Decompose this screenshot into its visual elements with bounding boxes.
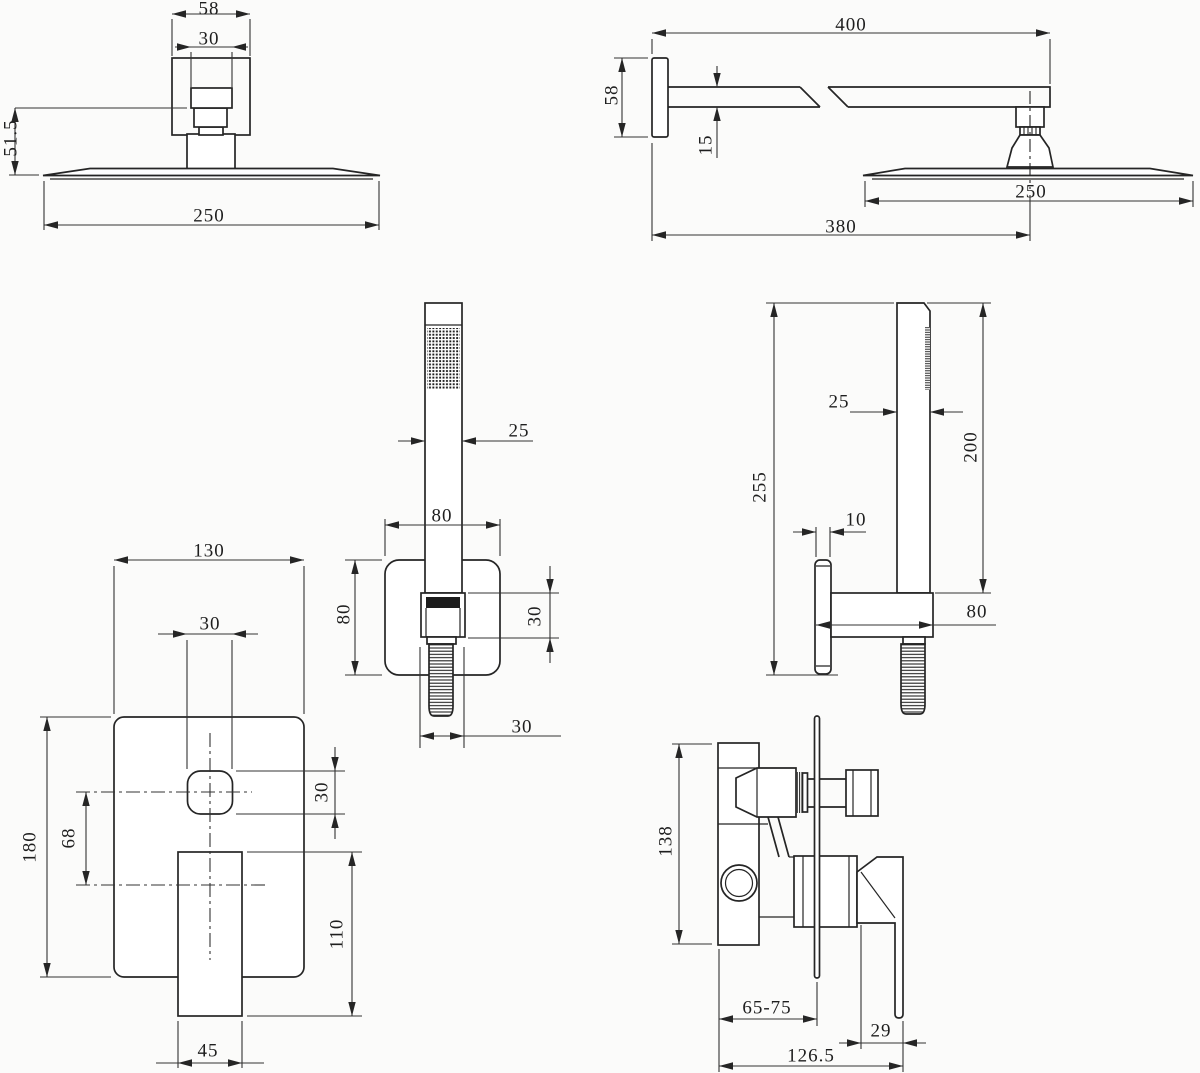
- diverter-nut: [846, 770, 878, 816]
- wall-flange: [652, 58, 668, 137]
- dim-label-plate-height: 180: [21, 831, 40, 863]
- dim-label-arm-length: 400: [835, 16, 867, 35]
- spray-face-edge: [925, 327, 930, 390]
- hose-neck: [427, 637, 456, 644]
- dim-label-arm-thickness: 15: [697, 135, 716, 156]
- dim-label-head-diameter-side: 250: [1015, 183, 1047, 202]
- dim-label-bracket-height-hs: 80: [335, 604, 354, 625]
- dim-label-handle-width: 45: [198, 1042, 219, 1061]
- internal-linkage: [768, 817, 789, 857]
- spray-face-pattern: [427, 328, 460, 389]
- dim-label-bracket-width: 58: [199, 0, 220, 19]
- connector-step1: [191, 88, 232, 108]
- connector-step2: [194, 108, 227, 127]
- dim-label-total-depth: 126.5: [787, 1047, 835, 1066]
- dim-label-holder-height: 30: [526, 606, 545, 627]
- shower-head-disc: [43, 169, 380, 176]
- dim-label-drop-height: 51.5: [2, 119, 21, 156]
- dim-label-wand-length: 200: [962, 431, 981, 463]
- connector-cylinder: [187, 134, 235, 169]
- view-hand-shower-front: [345, 303, 561, 748]
- dim-label-flange-height: 58: [603, 85, 622, 106]
- dim-label-handle-offset: 29: [871, 1022, 892, 1041]
- diverter-knob-side: [736, 768, 796, 817]
- view-shower-head-front: [9, 10, 380, 230]
- shower-arm-segment2: [828, 87, 1050, 107]
- dim-label-total-height: 255: [751, 471, 770, 503]
- dim-label-knob-width: 30: [200, 615, 221, 634]
- dim-label-wand-width: 25: [509, 422, 530, 441]
- mixer-lever-handle: [857, 857, 903, 1018]
- dim-label-body-height: 138: [657, 825, 676, 857]
- dim-label-plate-width: 130: [193, 542, 225, 561]
- holder-grip-band: [426, 597, 460, 608]
- diverter-stem: [807, 779, 846, 807]
- hose-neck-side: [903, 637, 925, 644]
- shower-arm-segment1: [668, 87, 820, 107]
- wall-trim-plate: [815, 716, 820, 978]
- wall-plate-side: [815, 560, 831, 674]
- view-mixer-side: [672, 716, 926, 1072]
- dim-label-wall-depth-range: 65-75: [742, 999, 791, 1018]
- dim-label-thread-width: 30: [512, 718, 533, 737]
- dim-label-knob-height: 30: [313, 782, 332, 803]
- shower-head-disc-side: [863, 169, 1193, 176]
- dim-label-holder-depth: 80: [967, 603, 988, 622]
- hose-thread-side: [901, 644, 925, 714]
- dim-label-head-diameter: 250: [193, 207, 225, 226]
- connector-neck: [199, 127, 223, 135]
- technical-drawing-page: 58 30 51.5 250 400 58 15 250 380 25 80 8…: [0, 0, 1200, 1073]
- hose-thread: [429, 644, 453, 716]
- drawing-canvas: [0, 0, 1200, 1073]
- dim-label-handle-length: 110: [328, 919, 347, 950]
- dim-label-inner-width: 30: [199, 30, 220, 49]
- dim-label-center-spacing: 68: [60, 828, 79, 849]
- dim-label-wall-to-center: 380: [825, 218, 857, 237]
- dim-label-bracket-width-hs: 80: [432, 507, 453, 526]
- holder-side: [831, 593, 933, 637]
- dim-label-wand-depth: 25: [829, 393, 850, 412]
- dim-label-plate-thickness: 10: [846, 511, 867, 530]
- view-hand-shower-side: [766, 303, 996, 714]
